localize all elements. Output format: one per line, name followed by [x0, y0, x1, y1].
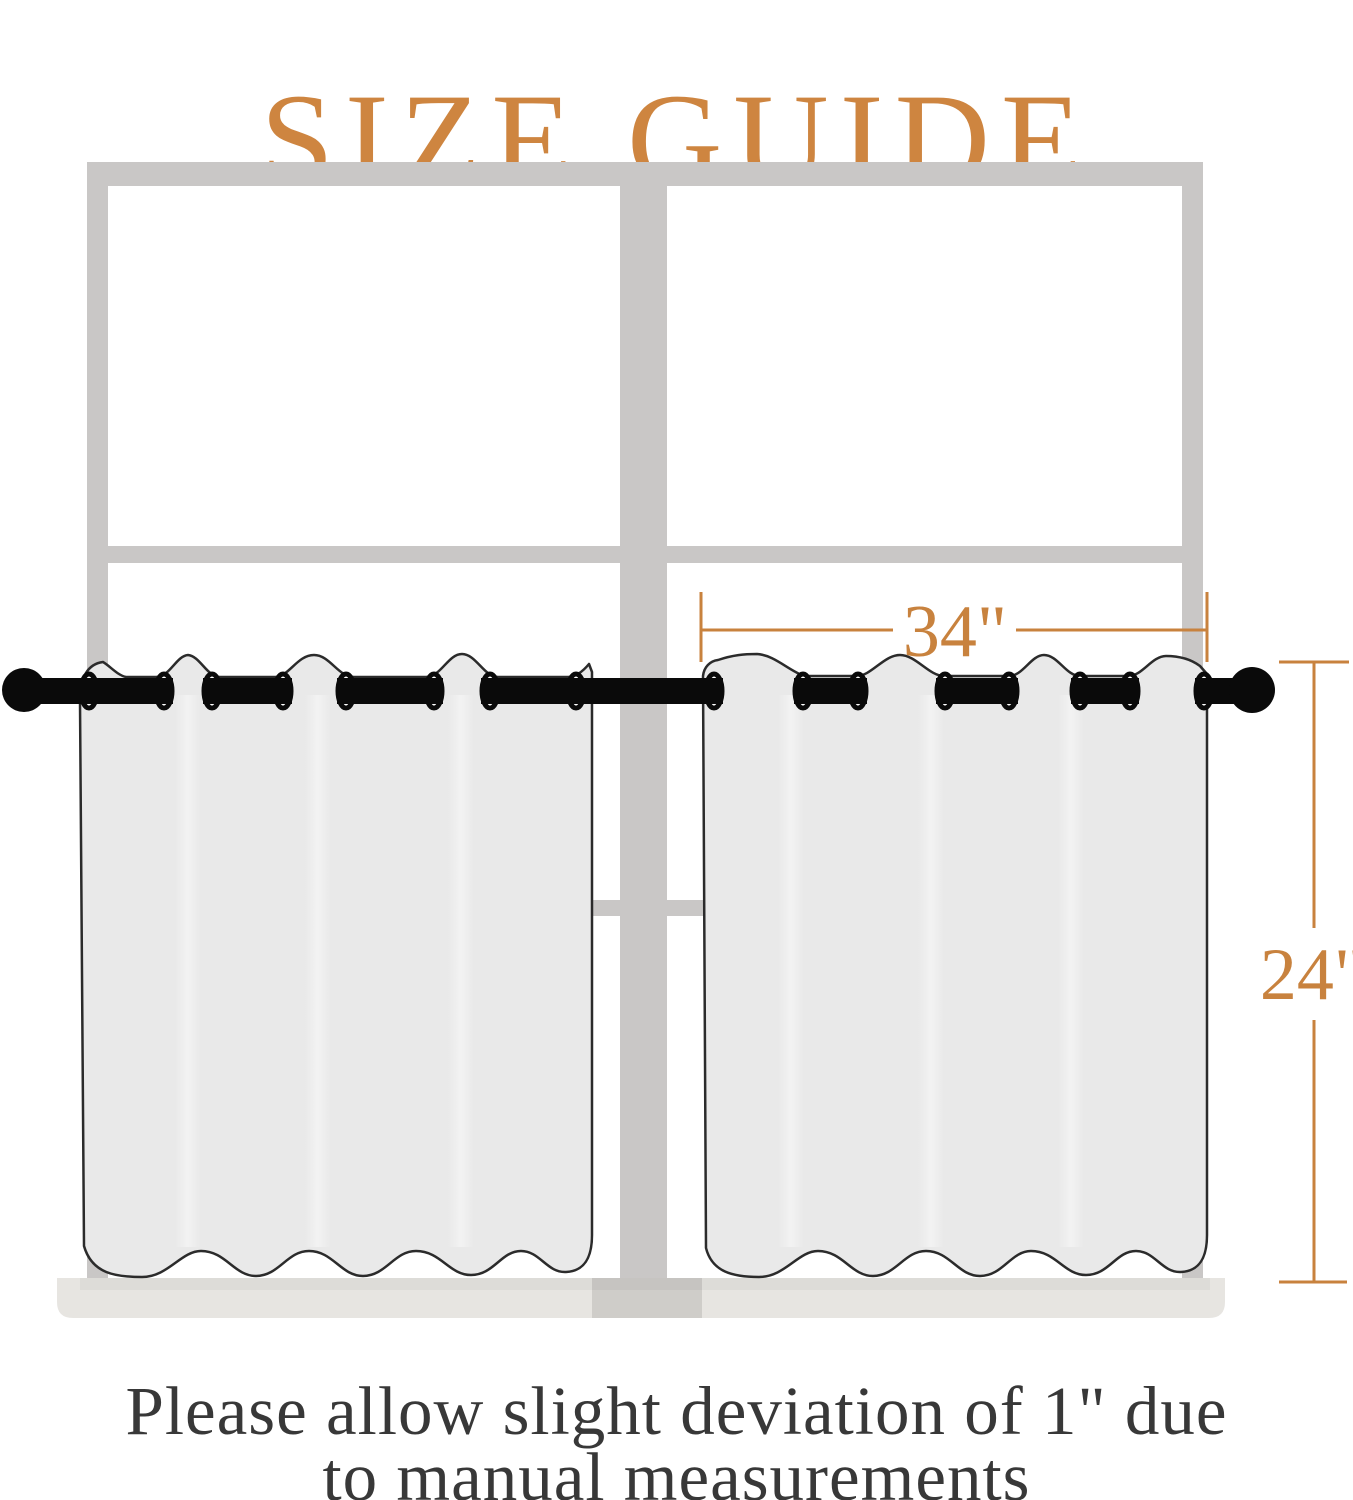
grommet — [794, 674, 812, 708]
grommet — [80, 674, 98, 708]
rod-finial-left — [2, 668, 46, 712]
grommet — [274, 674, 292, 708]
grommet — [481, 674, 499, 708]
grommet — [155, 674, 173, 708]
disclaimer-line-2: to manual measurements — [0, 1444, 1353, 1500]
grommet — [1121, 674, 1139, 708]
window-horizontal-mullion — [87, 546, 1203, 563]
grommet — [1195, 674, 1213, 708]
grommet — [567, 674, 585, 708]
disclaimer-text: Please allow slight deviation of 1" due … — [0, 1378, 1353, 1500]
disclaimer-line-1: Please allow slight deviation of 1" due — [0, 1378, 1353, 1444]
curtain-panel-left — [80, 654, 592, 1277]
grommet — [705, 674, 723, 708]
window-center-mullion — [620, 162, 667, 1278]
height-dimension-label: 24" — [1260, 934, 1353, 1016]
grommet — [1071, 674, 1089, 708]
grommet — [936, 674, 954, 708]
grommet — [337, 674, 355, 708]
grommet — [849, 674, 867, 708]
rod-finial-right — [1229, 667, 1275, 713]
sill-shadow-under-curtains — [80, 1278, 1210, 1290]
grommet — [203, 674, 221, 708]
size-guide-page: SIZE GUIDE — [0, 0, 1353, 1500]
grommet — [425, 674, 443, 708]
grommet — [1000, 674, 1018, 708]
width-dimension-label: 34" — [903, 591, 1007, 673]
curtain-size-diagram: 34" 24" — [0, 0, 1353, 1500]
